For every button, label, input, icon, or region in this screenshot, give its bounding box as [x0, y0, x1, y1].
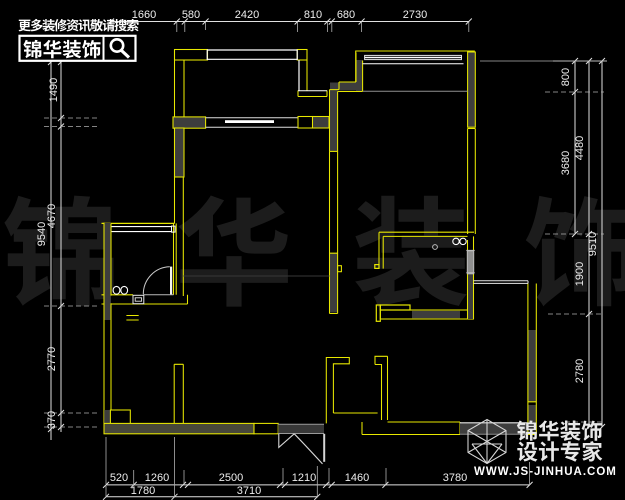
svg-text:1660: 1660 — [132, 9, 156, 21]
svg-text:1210: 1210 — [292, 472, 316, 484]
svg-text:810: 810 — [304, 9, 322, 21]
svg-text:1260: 1260 — [145, 472, 169, 484]
svg-text:1490: 1490 — [48, 78, 60, 102]
svg-text:680: 680 — [337, 9, 355, 21]
svg-text:9510: 9510 — [587, 232, 599, 256]
svg-text:800: 800 — [560, 68, 572, 86]
svg-text:4670: 4670 — [46, 204, 58, 228]
svg-text:1900: 1900 — [574, 262, 586, 286]
svg-text:2770: 2770 — [46, 347, 58, 371]
svg-text:3680: 3680 — [560, 151, 572, 175]
svg-text:520: 520 — [110, 472, 128, 484]
svg-text:3780: 3780 — [443, 472, 467, 484]
svg-text:2730: 2730 — [403, 9, 427, 21]
svg-text:1780: 1780 — [131, 485, 155, 497]
svg-text:580: 580 — [182, 9, 200, 21]
svg-text:3710: 3710 — [237, 485, 261, 497]
svg-text:1460: 1460 — [345, 472, 369, 484]
svg-text:WWW.JS-JINHUA.COM: WWW.JS-JINHUA.COM — [474, 466, 617, 478]
svg-text:4480: 4480 — [574, 136, 586, 160]
svg-text:2500: 2500 — [219, 472, 243, 484]
svg-text:370: 370 — [46, 411, 58, 429]
svg-text:2780: 2780 — [574, 359, 586, 383]
svg-text:2420: 2420 — [235, 9, 259, 21]
